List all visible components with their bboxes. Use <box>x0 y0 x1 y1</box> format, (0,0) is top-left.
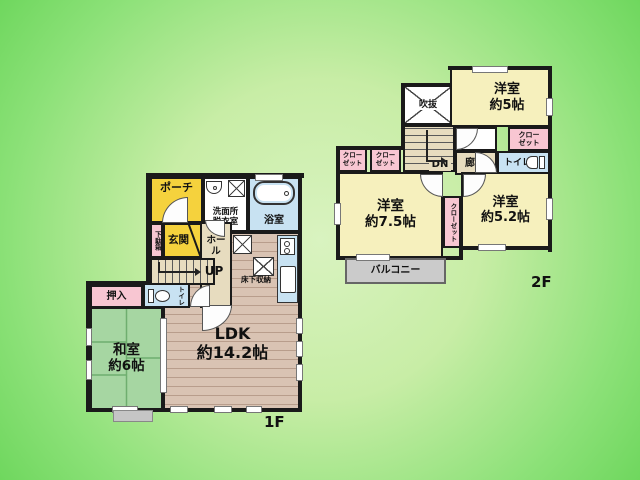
stairs-arrowhead-icon <box>441 157 447 165</box>
room-hall-label: ホール <box>202 235 230 257</box>
bathtub-icon <box>253 181 295 205</box>
oshiire-label: 押入 <box>107 291 127 303</box>
shoe-cabinet: 下駄箱 <box>150 223 163 258</box>
bathtub-drain-icon <box>284 191 289 196</box>
balcony-label: バルコニー <box>371 265 421 277</box>
toilet-icon <box>148 289 154 303</box>
void-atrium: 吹抜 <box>403 85 453 125</box>
balcony: バルコニー <box>345 258 446 284</box>
window-opening <box>334 203 341 225</box>
window-opening <box>296 364 303 381</box>
void-atrium-label: 吹抜 <box>417 100 439 111</box>
oshiire-closet: 押入 <box>90 285 143 308</box>
floorplan-canvas: ポーチ 洗面所 脱衣室 浴室 下駄箱 玄関 ホール 押入 <box>0 0 640 480</box>
window-opening <box>296 318 303 334</box>
closet-2f-center: クローゼット <box>443 196 461 248</box>
window-opening <box>86 360 92 380</box>
sliding-door-opening <box>160 318 167 393</box>
window-opening <box>546 98 553 116</box>
room-bathroom-label: 浴室 <box>264 215 284 227</box>
closet-2f-left-2-label: クロー ゼット <box>376 152 396 167</box>
underfloor-storage-icon <box>233 235 252 254</box>
window-opening <box>214 406 232 413</box>
closet-2f-left-2: クロー ゼット <box>370 148 401 172</box>
room-western-5: 洋室 約5帖 <box>450 68 550 127</box>
room-western-7-5-label: 洋室 約7.5帖 <box>365 199 416 231</box>
room-western-5-label: 洋室 約5帖 <box>475 82 524 113</box>
sink-drain-icon <box>213 186 217 190</box>
window-opening <box>356 254 390 261</box>
window-opening <box>546 198 553 220</box>
closet-2f-left-1: クロー ゼット <box>338 148 367 172</box>
kitchen-sink-icon <box>280 266 296 293</box>
room-japanese-label: 和室 約6帖 <box>108 343 144 375</box>
window-opening <box>255 174 283 181</box>
toilet-bowl-icon <box>526 156 538 169</box>
closet-2f-right: クロー ゼット <box>508 127 550 151</box>
floor-label-2f: 2F <box>531 273 552 291</box>
window-opening <box>170 406 188 413</box>
exterior-step <box>113 410 153 422</box>
underfloor-storage-icon <box>253 257 274 276</box>
toilet-1f-label: トイレ <box>176 286 184 306</box>
closet-2f-center-label: クローゼット <box>448 203 456 242</box>
window-opening <box>478 244 506 251</box>
burner-icon <box>284 241 290 247</box>
room-japanese: 和室 約6帖 <box>90 307 163 410</box>
stove-icon <box>280 238 295 255</box>
floor-label-1f: 1F <box>264 413 285 431</box>
closet-2f-right-label: クロー ゼット <box>519 131 540 148</box>
toilet-icon <box>539 156 545 169</box>
window-opening <box>296 341 303 357</box>
burner-icon <box>284 248 290 254</box>
room-western-5-2-label: 洋室 約5.2帖 <box>481 195 530 226</box>
stairs-arrow-icon <box>426 160 442 162</box>
window-opening <box>472 66 508 73</box>
stairs-up-label: UP <box>201 264 227 278</box>
window-opening <box>86 328 92 346</box>
stairs-arrow-icon <box>158 271 196 273</box>
stairs-arrowhead-icon <box>195 268 201 276</box>
underfloor-storage-label: 床下収納 <box>233 276 279 285</box>
room-ldk-label: LDK 約14.2帖 <box>165 325 300 363</box>
room-porch-label: ポーチ <box>160 182 193 195</box>
closet-2f-left-1-label: クロー ゼット <box>343 152 363 167</box>
washer-space-icon <box>228 180 245 197</box>
room-entrance: 玄関 <box>163 223 202 258</box>
toilet-bowl-icon <box>155 290 170 302</box>
stairs-arrow-icon <box>426 130 428 162</box>
window-opening <box>246 406 262 413</box>
shoe-cabinet-label: 下駄箱 <box>153 231 161 251</box>
